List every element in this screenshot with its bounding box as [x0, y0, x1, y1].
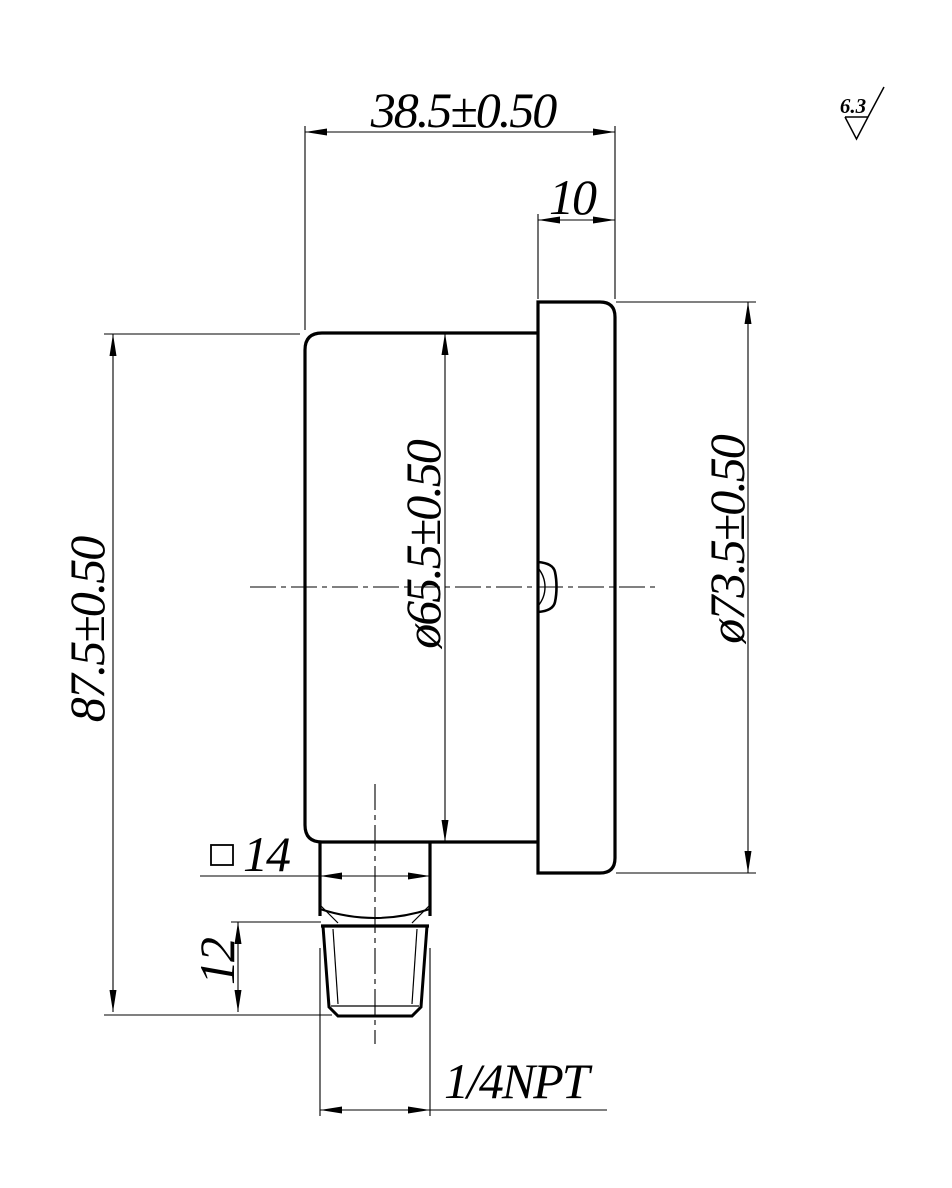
centerlines — [250, 587, 660, 1044]
dim-overall-height-label: 87.5±0.50 — [59, 536, 115, 722]
dim-case-diameter-label: ø65.5±0.50 — [395, 439, 451, 649]
dim-overall-depth-label: 38.5±0.50 — [370, 82, 557, 138]
thread-spec-label: 1/4NPT — [444, 1053, 593, 1109]
square-symbol — [211, 845, 233, 865]
thread-root-right — [412, 929, 417, 1004]
dim-thread-length-label: 12 — [189, 938, 245, 985]
thread-root-left — [333, 929, 338, 1004]
engineering-drawing-sheet: 38.5±0.50 10 87.5±0.50 ø65.5±0.50 ø73.5±… — [0, 0, 952, 1188]
dim-wrench-square-label: 14 — [243, 826, 290, 882]
dim-bezel-depth-label: 10 — [549, 169, 597, 225]
surface-finish-value: 6.3 — [840, 94, 866, 118]
dim-bezel-diameter-label: ø73.5±0.50 — [699, 434, 755, 644]
gauge-side-view — [305, 302, 615, 1016]
drawing-canvas: 38.5±0.50 10 87.5±0.50 ø65.5±0.50 ø73.5±… — [0, 0, 952, 1188]
